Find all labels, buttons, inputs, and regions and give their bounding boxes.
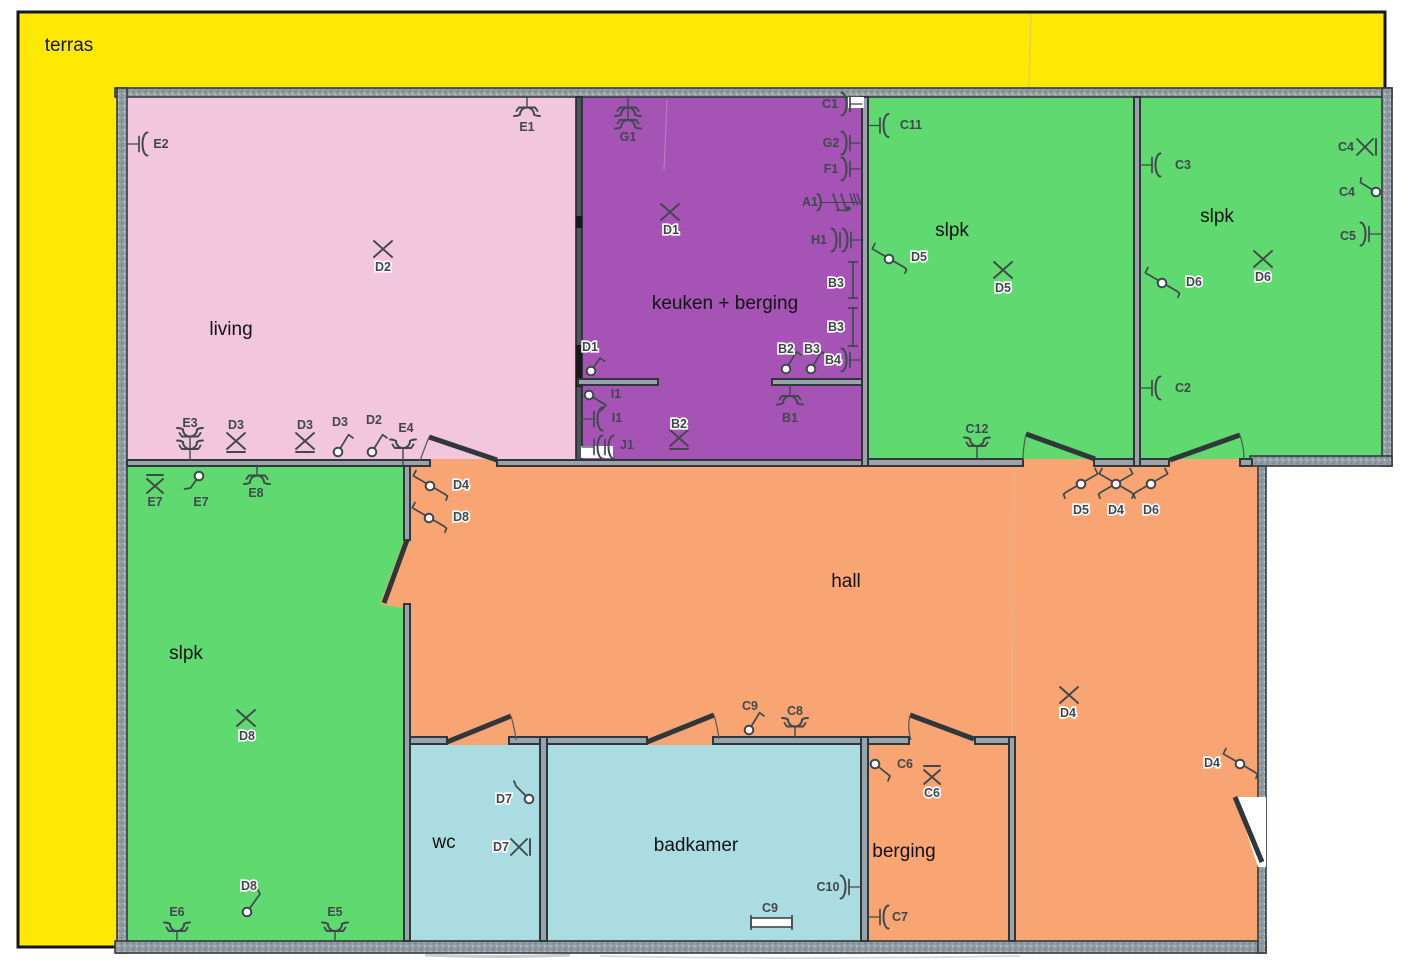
svg-text:C6: C6	[897, 757, 913, 771]
svg-text:C12: C12	[966, 422, 989, 436]
svg-text:C4: C4	[1339, 185, 1355, 199]
svg-text:D3: D3	[228, 418, 244, 432]
svg-text:D8: D8	[239, 729, 255, 743]
svg-text:C11: C11	[900, 118, 922, 132]
svg-text:E3: E3	[182, 416, 197, 430]
svg-text:D2: D2	[375, 260, 391, 274]
svg-text:wc: wc	[431, 832, 455, 853]
svg-text:keuken + berging: keuken + berging	[652, 293, 798, 314]
svg-text:hall: hall	[831, 571, 861, 592]
svg-text:C5: C5	[1340, 229, 1356, 243]
svg-text:I1: I1	[611, 387, 621, 401]
svg-text:slpk: slpk	[935, 220, 969, 241]
svg-text:D2: D2	[366, 413, 382, 427]
svg-text:D7: D7	[493, 840, 509, 854]
svg-text:B3: B3	[804, 342, 820, 356]
svg-text:C7: C7	[892, 910, 908, 924]
svg-text:badkamer: badkamer	[654, 835, 739, 856]
svg-text:slpk: slpk	[1200, 206, 1234, 227]
svg-text:E5: E5	[327, 905, 342, 919]
svg-text:D6: D6	[1186, 275, 1202, 289]
svg-text:C4: C4	[1338, 140, 1354, 154]
svg-text:C2: C2	[1175, 381, 1191, 395]
svg-text:B4: B4	[825, 353, 841, 367]
svg-text:C10: C10	[817, 880, 840, 894]
svg-text:D4: D4	[1060, 706, 1076, 720]
svg-text:D4: D4	[453, 478, 469, 492]
svg-text:E2: E2	[153, 137, 168, 151]
svg-text:J1: J1	[620, 438, 634, 452]
svg-text:D8: D8	[453, 510, 469, 524]
svg-text:E7: E7	[147, 495, 162, 509]
svg-text:slpk: slpk	[169, 643, 203, 664]
svg-text:B2: B2	[778, 342, 794, 356]
svg-text:D5: D5	[1073, 503, 1089, 517]
svg-text:berging: berging	[872, 841, 935, 862]
svg-text:B3: B3	[828, 320, 844, 334]
svg-text:E4: E4	[398, 421, 413, 435]
svg-text:E6: E6	[169, 905, 184, 919]
svg-text:C9: C9	[762, 901, 778, 915]
svg-text:D4: D4	[1204, 756, 1220, 770]
svg-text:living: living	[209, 319, 252, 340]
svg-text:D3: D3	[332, 415, 348, 429]
svg-text:C3: C3	[1175, 158, 1191, 172]
svg-text:D6: D6	[1143, 503, 1159, 517]
svg-text:D1: D1	[582, 340, 598, 354]
svg-text:C8: C8	[787, 704, 803, 718]
svg-text:D1: D1	[663, 223, 679, 237]
svg-text:terras: terras	[45, 35, 94, 56]
svg-text:B2: B2	[671, 417, 687, 431]
svg-text:D5: D5	[995, 281, 1011, 295]
svg-text:C1: C1	[822, 97, 838, 111]
svg-text:A1: A1	[802, 195, 818, 209]
svg-text:D6: D6	[1255, 270, 1271, 284]
svg-text:D8: D8	[241, 879, 257, 893]
svg-text:D3: D3	[297, 418, 313, 432]
svg-text:H1: H1	[811, 233, 827, 247]
svg-text:B3: B3	[828, 276, 844, 290]
svg-text:D7: D7	[496, 792, 512, 806]
svg-text:F1: F1	[824, 162, 839, 176]
svg-text:E7: E7	[193, 495, 208, 509]
svg-text:B1: B1	[782, 411, 798, 425]
svg-text:E1: E1	[519, 120, 534, 134]
svg-text:I1: I1	[612, 411, 622, 425]
svg-text:E8: E8	[248, 486, 263, 500]
svg-text:C9: C9	[742, 699, 758, 713]
svg-text:G1: G1	[620, 130, 637, 144]
svg-text:D4: D4	[1108, 503, 1124, 517]
svg-text:D5: D5	[911, 250, 927, 264]
svg-text:C6: C6	[924, 786, 940, 800]
svg-text:G2: G2	[823, 136, 840, 150]
